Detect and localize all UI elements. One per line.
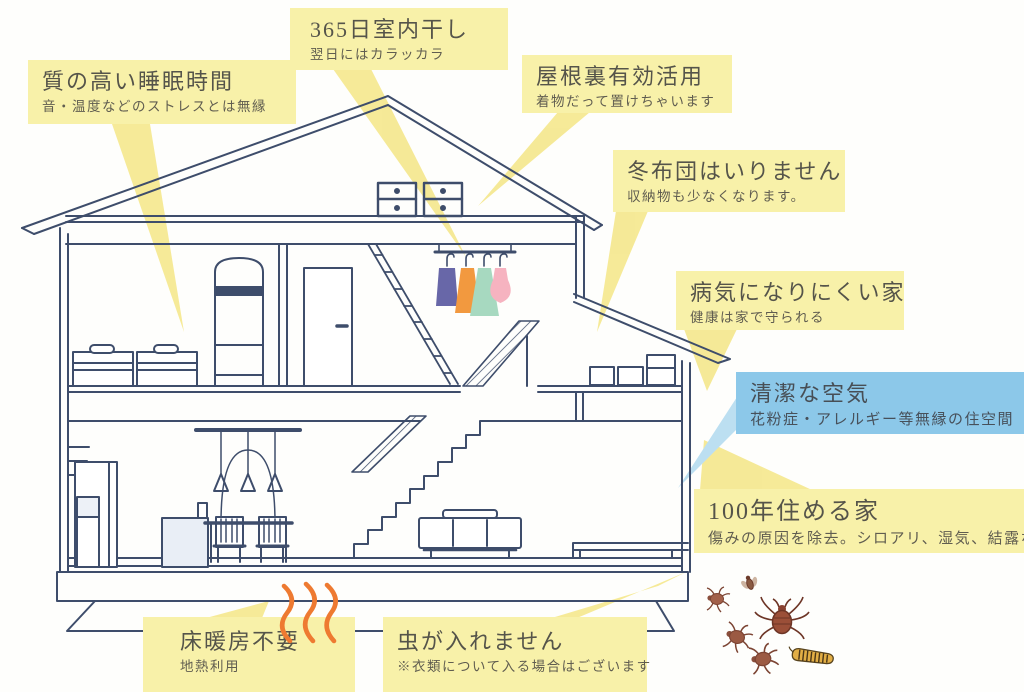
pointer-indoor-drying: [333, 69, 466, 257]
house-benefits-diagram: 質の高い睡眠時間 音・温度などのストレスとは無縁 365日室内干し 翌日にはカラ…: [0, 0, 1024, 692]
twin-beds: [73, 345, 197, 386]
callout-subtitle: 音・温度などのストレスとは無縁: [42, 99, 282, 115]
callout-subtitle: 花粉症・アレルギー等無縁の住空間: [750, 411, 1010, 429]
fly-icon: [738, 573, 761, 592]
callout-subtitle: 地熱利用: [180, 659, 341, 675]
callout-100-year-house: 100年住める家 傷みの原因を除去。シロアリ、湿気、結露など: [694, 489, 1024, 553]
clothes-rod: [435, 244, 515, 252]
attic-ladder: [368, 244, 458, 384]
stair-railing: [352, 321, 539, 472]
pointer-attic-use: [478, 112, 590, 206]
callout-subtitle: 着物だって置けちゃいます: [536, 94, 718, 110]
callout-subtitle: 傷みの原因を除去。シロアリ、湿気、結露など: [708, 530, 1010, 548]
callout-title: 屋根裏有効活用: [536, 64, 718, 91]
callout-no-floor-heating: 床暖房不要 地熱利用: [143, 617, 355, 692]
dining-set: [205, 517, 292, 562]
callout-clean-air: 清潔な空気 花粉症・アレルギー等無縁の住空間: [736, 372, 1024, 434]
callout-no-winter-futon: 冬布団はいりません 収納物も少なくなります。: [613, 150, 845, 212]
wardrobe: [215, 258, 263, 386]
callout-subtitle: 健康は家で守られる: [690, 310, 890, 326]
callout-attic-use: 屋根裏有効活用 着物だって置けちゃいます: [522, 55, 732, 113]
tv-bench: [573, 543, 688, 558]
callout-title: 清潔な空気: [750, 381, 1010, 408]
callout-title: 質の高い睡眠時間: [42, 69, 282, 96]
insect-icons: [707, 573, 834, 677]
walls-and-floors: [60, 216, 682, 572]
callout-title: 病気になりにくい家: [690, 280, 890, 307]
tick-icon-2: [749, 642, 781, 676]
kitchen-counter: [162, 503, 208, 567]
callout-title: 床暖房不要: [180, 629, 341, 656]
pointer-no-insects: [545, 572, 686, 620]
callout-subtitle: 翌日にはカラッカラ: [310, 47, 494, 63]
callout-no-insects: 虫が入れません ※衣類について入る場合はございます: [383, 617, 647, 692]
pendant-lights: [196, 430, 300, 523]
hanger-icons: [447, 254, 507, 266]
refrigerator: [75, 462, 117, 567]
callout-title: 冬布団はいりません: [627, 159, 831, 186]
hanging-clothes: [436, 268, 511, 316]
callout-title: 100年住める家: [708, 498, 1010, 527]
callout-title: 虫が入れません: [397, 629, 633, 656]
tick-icon: [722, 621, 755, 655]
callout-indoor-drying: 365日室内干し 翌日にはカラッカラ: [290, 8, 508, 70]
callout-title: 365日室内干し: [310, 17, 494, 44]
big-mite-icon: [755, 597, 809, 639]
pointer-quality-sleep: [112, 124, 184, 332]
callout-subtitle: 収納物も少なくなります。: [627, 189, 831, 205]
purple-shirt: [436, 268, 458, 306]
callout-quality-sleep: 質の高い睡眠時間 音・温度などのストレスとは無縁: [28, 60, 296, 124]
storage-boxes: [590, 355, 675, 385]
pink-dress: [490, 268, 510, 303]
pointer-no-floor-heating: [206, 601, 269, 618]
callout-subtitle: ※衣類について入る場合はございます: [397, 659, 633, 675]
bedroom-door: [304, 268, 352, 386]
caterpillar-icon: [788, 647, 834, 665]
sofa: [419, 510, 521, 558]
callout-healthy-house: 病気になりにくい家 健康は家で守られる: [676, 271, 904, 330]
mite-icon: [707, 587, 730, 612]
